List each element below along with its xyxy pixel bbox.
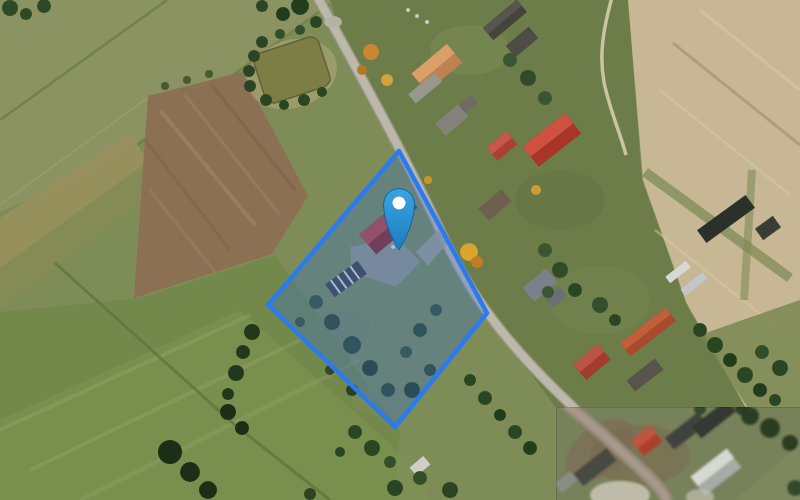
tile-patch — [554, 400, 800, 500]
marker-pin-dot — [393, 197, 406, 210]
aerial-imagery-layer — [0, 0, 800, 500]
map-canvas — [0, 0, 800, 500]
map-viewport[interactable] — [0, 0, 800, 500]
